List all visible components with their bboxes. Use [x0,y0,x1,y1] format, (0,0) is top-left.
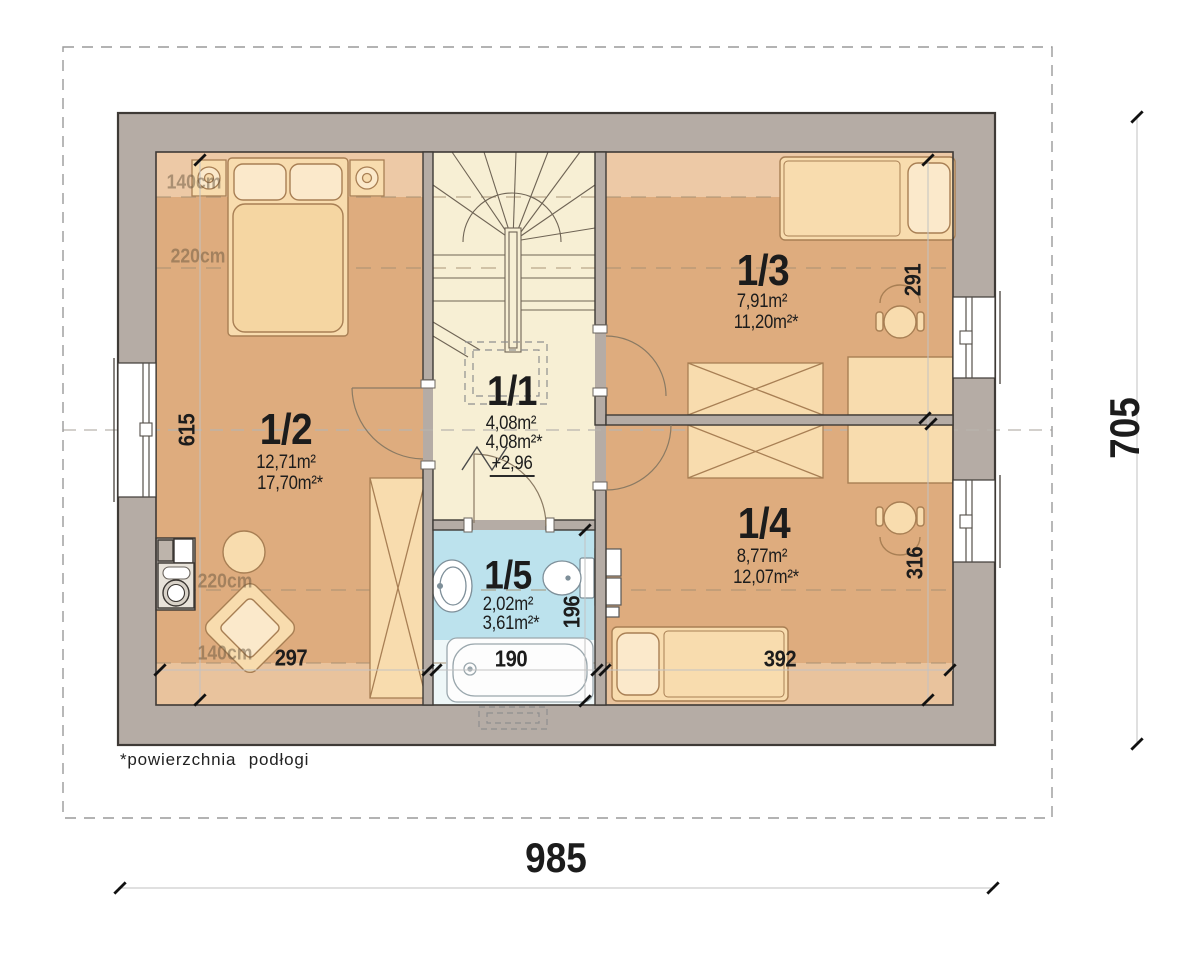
room-1-3-floor-area: 11,20m²* [734,312,799,334]
window-right-bottom [953,475,1000,568]
room-1-3-number: 1/3 [737,246,790,296]
height-line-220-top: 220cm [171,246,226,269]
dim-bath-depth: 196 [559,596,586,628]
floor-area-footnote: *powierzchnia podłogi [120,750,309,770]
floor-level-value: +2,96 [490,453,535,477]
height-line-140-top: 140cm [167,172,222,195]
room-1-4-number: 1/4 [738,499,791,549]
washbasin [432,560,472,612]
room-1-2-number: 1/2 [260,405,313,455]
floor-plan-svg [0,0,1200,957]
dim-room4-width: 392 [764,646,796,673]
wardrobe-room3 [688,363,823,415]
single-bed-room4 [612,627,788,701]
dim-room4-depth: 316 [902,547,929,579]
dim-room3-depth: 291 [900,264,927,296]
toilet [543,558,594,598]
dim-bath-width: 190 [495,646,527,673]
dim-overall-depth: 705 [1101,397,1149,459]
height-line-220-bottom: 220cm [198,571,253,594]
dim-overall-width: 985 [525,834,587,882]
room-1-2-floor-area: 17,70m²* [257,473,323,495]
double-bed [228,158,348,336]
floor-plan: 1/2 12,71m² 17,70m²* 1/1 4,08m² 4,08m²* … [0,0,1200,957]
boiler-unit [156,538,195,610]
dim-room2-width: 297 [275,645,307,672]
desk-room4 [848,425,953,483]
window-right-top [953,291,1000,384]
desk-room3 [848,357,953,415]
single-bed-room3 [780,157,955,240]
room-1-4-floor-area: 12,07m²* [733,567,799,589]
room-1-3-area: 7,91m² [737,291,787,313]
wardrobe-room2 [370,478,426,698]
room-1-2-area: 12,71m² [256,452,315,474]
room-1-1-floor-area: 4,08m²* [486,432,543,454]
window-left [114,358,156,502]
wardrobe-room4 [688,425,823,478]
dim-room2-depth: 615 [174,414,201,446]
room-1-4-area: 8,77m² [737,546,787,568]
room-1-5-number: 1/5 [484,554,532,599]
round-table [223,531,265,573]
nightstand-right [350,160,384,196]
height-line-140-bottom: 140cm [198,643,253,666]
room-1-1-level: +2,96 [490,453,535,475]
room-1-1-number: 1/1 [487,367,537,415]
room-1-5-floor-area: 3,61m²* [483,613,540,635]
